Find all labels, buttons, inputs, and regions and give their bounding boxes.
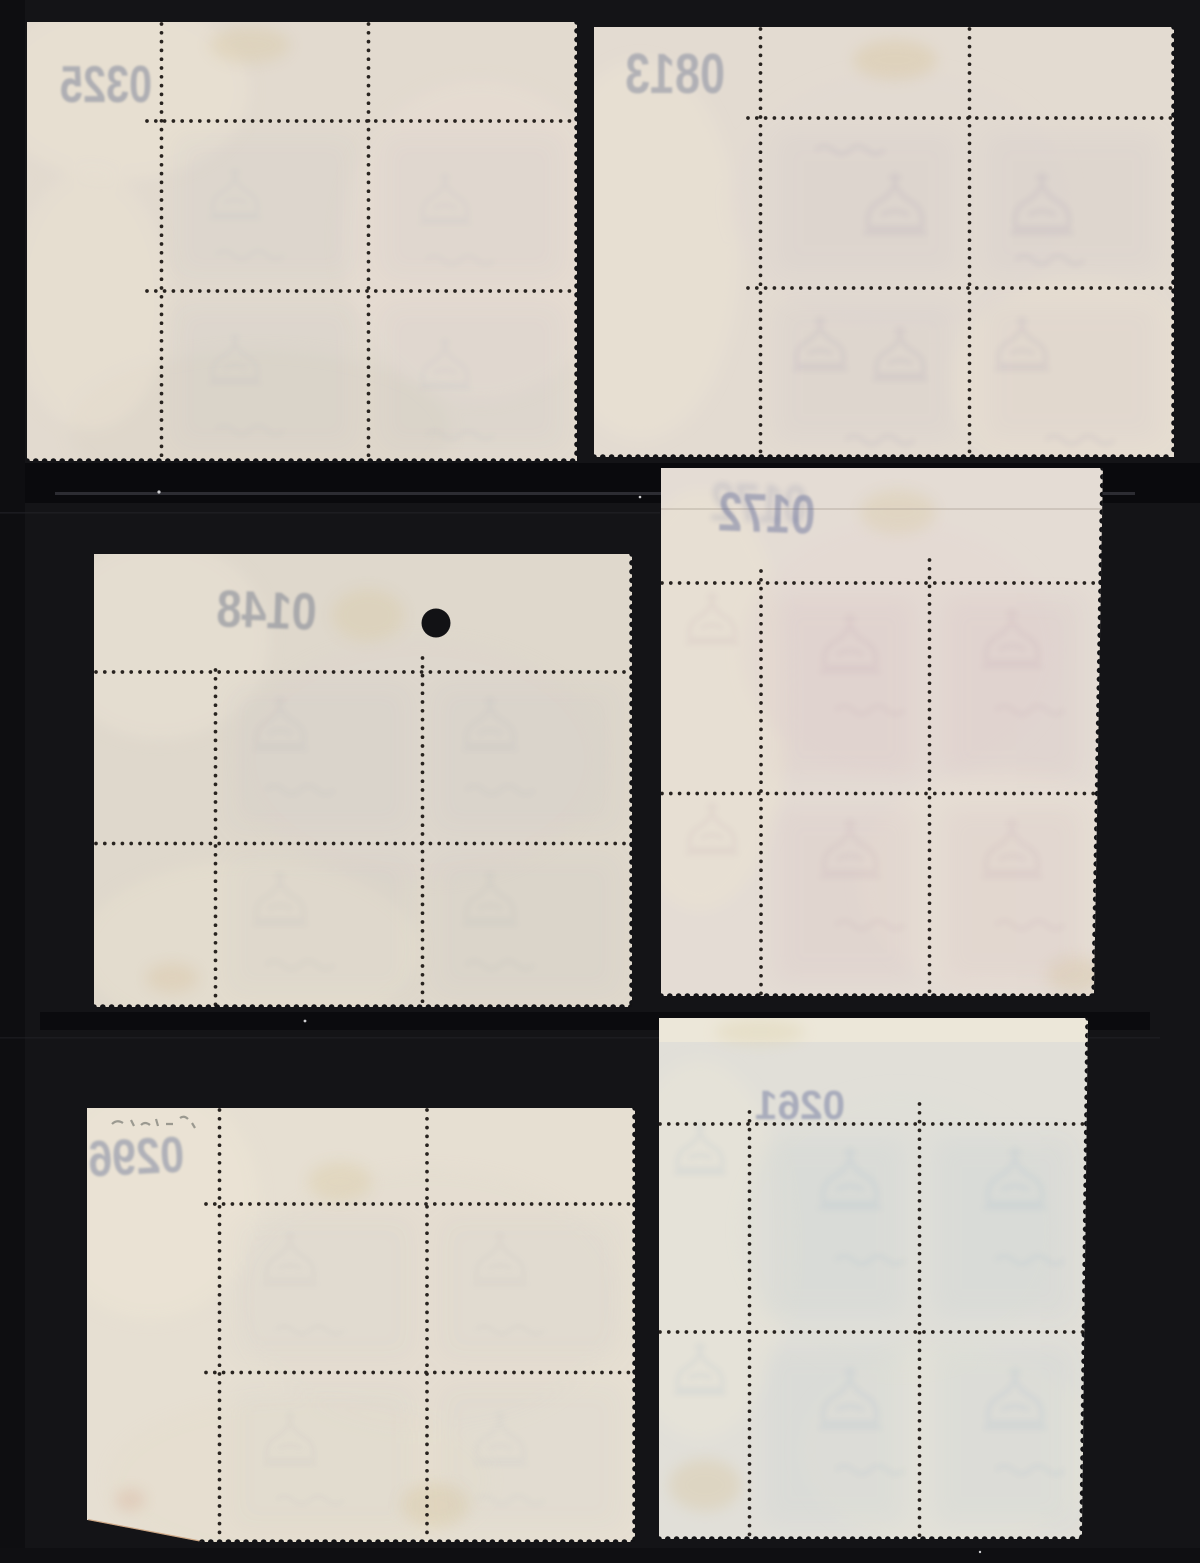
svg-text:0325: 0325 bbox=[60, 56, 152, 114]
svg-text:0148: 0148 bbox=[216, 580, 318, 641]
svg-text:0296: 0296 bbox=[87, 1126, 186, 1188]
svg-text:0172: 0172 bbox=[717, 480, 816, 545]
svg-text:0261: 0261 bbox=[755, 1082, 845, 1128]
svg-text:0813: 0813 bbox=[625, 42, 725, 106]
